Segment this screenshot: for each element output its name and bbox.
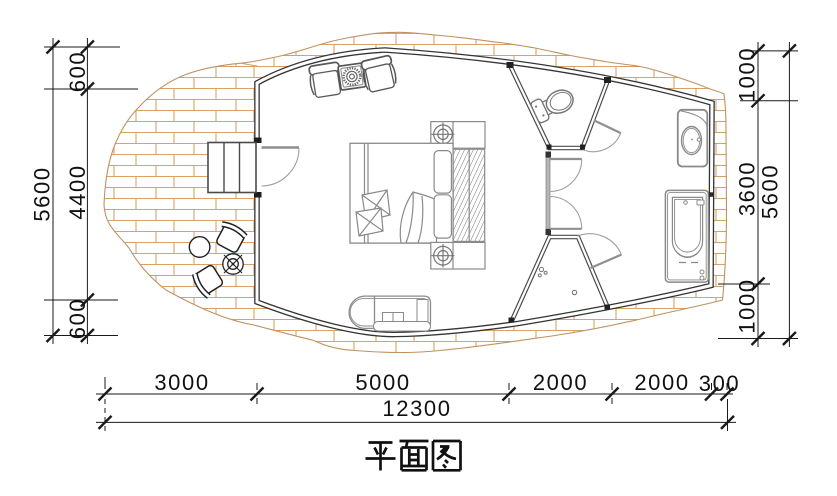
- svg-text:600: 600: [65, 298, 90, 340]
- svg-text:2000: 2000: [634, 370, 689, 395]
- svg-text:1000: 1000: [735, 47, 760, 102]
- svg-text:300: 300: [699, 371, 741, 396]
- svg-text:4400: 4400: [65, 164, 90, 219]
- svg-text:5000: 5000: [355, 370, 410, 395]
- svg-text:12300: 12300: [382, 396, 451, 421]
- svg-text:3600: 3600: [735, 161, 760, 216]
- svg-text:600: 600: [65, 51, 90, 93]
- svg-text:5600: 5600: [758, 164, 783, 219]
- svg-text:3000: 3000: [154, 370, 209, 395]
- svg-text:2000: 2000: [533, 370, 588, 395]
- svg-text:5600: 5600: [30, 166, 55, 221]
- svg-text:1000: 1000: [735, 278, 760, 333]
